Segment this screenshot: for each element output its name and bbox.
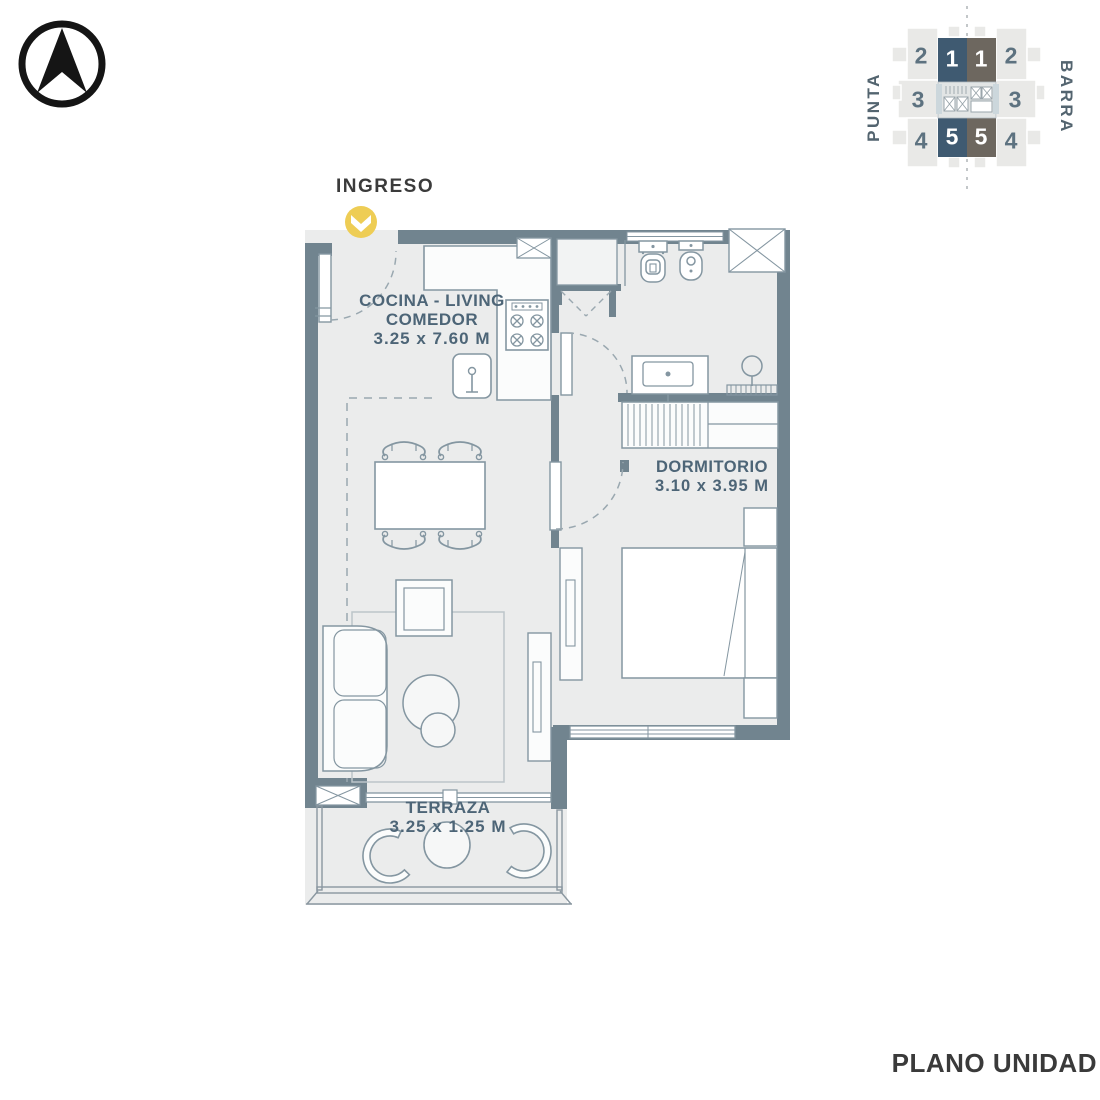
keyplan-wing-barra-label: BARRA (1056, 60, 1076, 134)
north-arrow-icon (22, 24, 102, 104)
terrace-shaft (316, 786, 360, 805)
keyplan-unit-number: 3 (912, 89, 925, 112)
terrace-dims: 3.25 x 1.25 M (358, 817, 538, 836)
bed-icon (622, 548, 777, 678)
keyplan-core (936, 82, 999, 118)
bidet-icon (679, 241, 703, 280)
dining-table-icon (375, 462, 485, 529)
living-room-dims: 3.25 x 7.60 M (342, 329, 522, 348)
bedroom-dims: 3.10 x 3.95 M (628, 477, 796, 496)
keyplan-unit-number: 1 (975, 48, 988, 71)
keyplan-wing-punta-label: PUNTA (864, 72, 884, 142)
keyplan-unit-number: 5 (946, 126, 959, 149)
floor-plan-canvas (0, 0, 1100, 1100)
terrace-name: TERRAZA (406, 798, 491, 817)
page-title: PLANO UNIDAD (697, 1048, 1097, 1079)
kitchen-sink-icon (453, 354, 491, 398)
living-room-name: COCINA - LIVING COMEDOR (359, 291, 505, 329)
kitchen-shaft (517, 238, 551, 258)
keyplan-unit-number: 4 (915, 130, 928, 153)
sofa-icon (323, 626, 387, 771)
toilet-icon (639, 241, 667, 282)
keyplan-unit-number: 2 (1005, 45, 1018, 68)
bath-window (627, 232, 723, 241)
bedroom-label: DORMITORIO 3.10 x 3.95 M (628, 458, 796, 496)
armchair-icon (396, 580, 452, 636)
bedroom-name: DORMITORIO (656, 458, 768, 476)
keyplan-unit-number: 3 (1009, 89, 1022, 112)
keyplan-unit-number: 1 (946, 48, 959, 71)
living-tv-console-icon (528, 633, 551, 761)
living-room-label: COCINA - LIVING COMEDOR 3.25 x 7.60 M (342, 291, 522, 348)
entry-label: INGRESO (336, 176, 434, 198)
keyplan-unit-number: 4 (1005, 130, 1018, 153)
bath-shaft (729, 229, 785, 272)
terrace-label: TERRAZA 3.25 x 1.25 M (358, 798, 538, 836)
keyplan-unit-number: 5 (975, 126, 988, 149)
bedroom-window (570, 726, 735, 738)
entry-marker-icon (345, 206, 377, 238)
bedroom-tv-console-icon (560, 548, 582, 680)
wardrobe-icon (622, 402, 778, 448)
keyplan-unit-number: 2 (915, 45, 928, 68)
